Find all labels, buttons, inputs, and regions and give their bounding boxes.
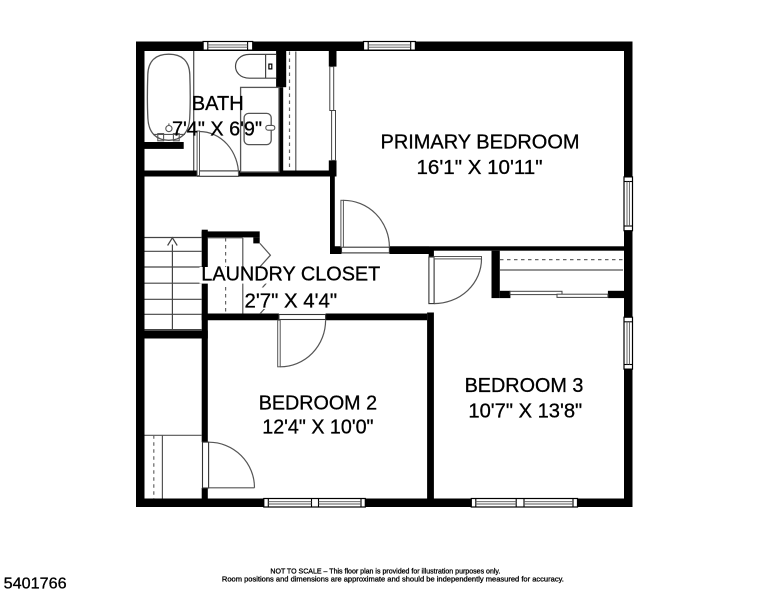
svg-text:12'4" X 10'0": 12'4" X 10'0" <box>262 417 373 439</box>
svg-text:10'7" X 13'8": 10'7" X 13'8" <box>468 401 582 423</box>
svg-text:5401766: 5401766 <box>4 575 67 592</box>
svg-text:LAUNDRY CLOSET: LAUNDRY CLOSET <box>201 263 380 285</box>
svg-text:2'7" X 4'4": 2'7" X 4'4" <box>245 291 338 313</box>
svg-text:16'1" X 10'11": 16'1" X 10'11" <box>417 157 543 179</box>
svg-text:PRIMARY BEDROOM: PRIMARY BEDROOM <box>381 131 580 153</box>
svg-text:BATH: BATH <box>192 93 244 115</box>
svg-text:BEDROOM 2: BEDROOM 2 <box>259 393 377 415</box>
svg-text:Room positions and dimensions: Room positions and dimensions are approx… <box>222 575 564 584</box>
svg-text:BEDROOM 3: BEDROOM 3 <box>465 375 584 397</box>
svg-text:7'4" X 6'9": 7'4" X 6'9" <box>172 119 262 141</box>
